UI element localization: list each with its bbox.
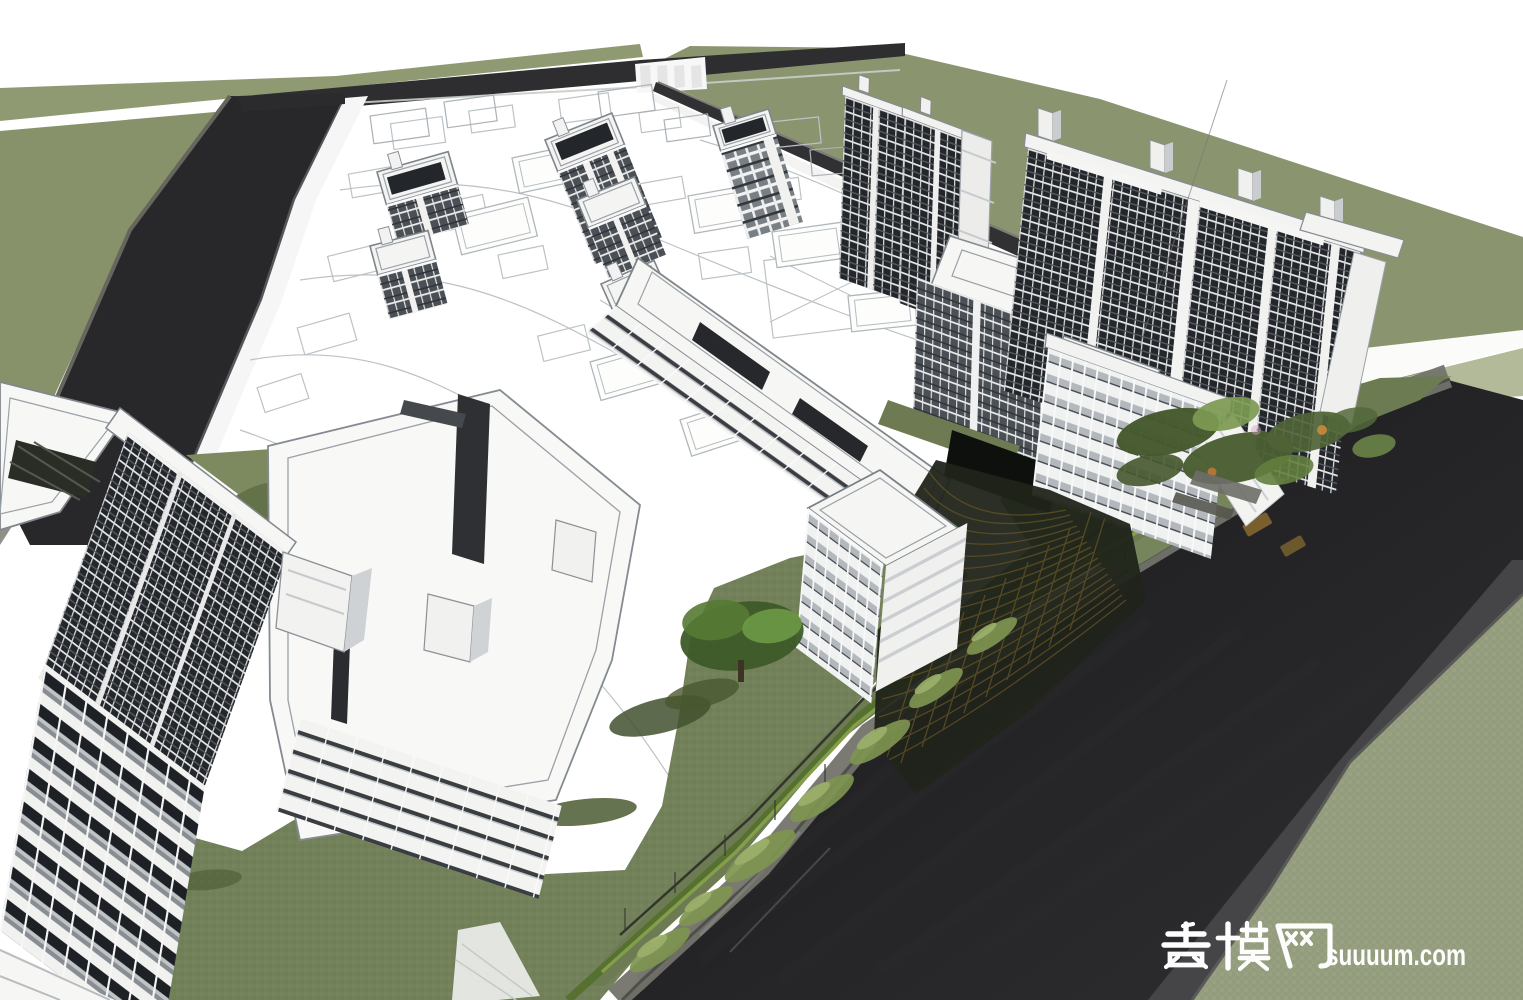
- svg-text:suuuum.com: suuuum.com: [1326, 939, 1466, 972]
